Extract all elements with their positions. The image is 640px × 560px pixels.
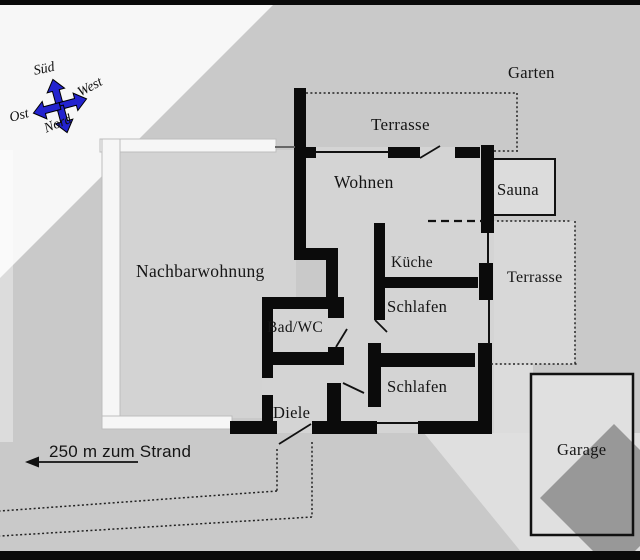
label-wohnen: Wohnen [334, 174, 394, 192]
floorplan-canvas: Garten Terrasse Wohnen Sauna Küche Terra… [0, 0, 640, 560]
label-nachbarwohnung: Nachbarwohnung [136, 263, 265, 281]
neighbour-wall-top [100, 139, 276, 152]
label-sauna: Sauna [497, 182, 539, 199]
label-terrasse-right: Terrasse [507, 270, 562, 286]
label-diele: Diele [273, 405, 310, 422]
bottom-frame-strip [0, 551, 640, 560]
background-left-light-strip [0, 150, 13, 442]
label-schlafen-lower: Schlafen [387, 379, 447, 396]
label-schlafen-upper: Schlafen [387, 299, 447, 316]
side-strip-ground [494, 364, 533, 433]
top-frame-strip [0, 0, 640, 5]
beach-distance-note: 250 m zum Strand [49, 443, 191, 460]
neighbour-wall-left [102, 139, 120, 429]
label-garage: Garage [557, 442, 606, 459]
label-terrasse-top: Terrasse [371, 116, 430, 133]
terrace-right-ground [494, 221, 575, 364]
label-kueche: Küche [391, 255, 433, 271]
label-garten: Garten [508, 65, 555, 82]
neighbour-wall-bottom [102, 416, 232, 429]
label-bad-wc: Bad/WC [267, 320, 323, 336]
